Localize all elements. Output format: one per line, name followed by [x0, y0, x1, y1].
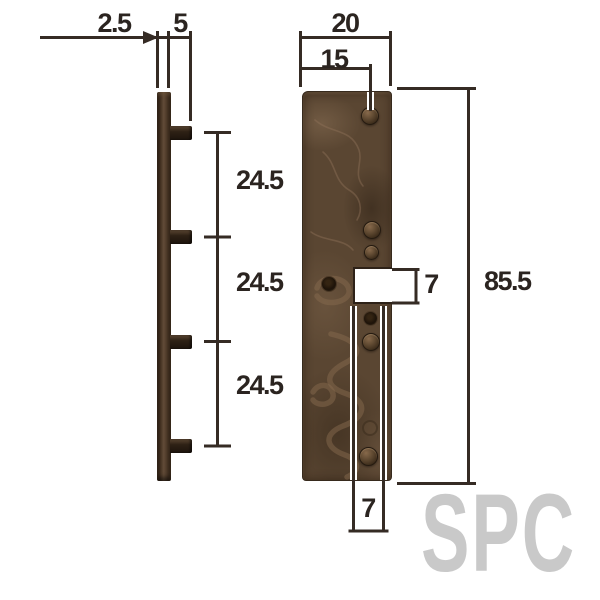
label-peg-length: 5 — [167, 10, 193, 37]
label-pin-offset: 15 — [311, 46, 357, 73]
label-notch-height: 7 — [421, 271, 441, 298]
label-spacing-3: 24.5 — [236, 372, 283, 399]
label-height: 85.5 — [484, 268, 531, 295]
label-width: 20 — [322, 10, 368, 37]
label-notch-width: 7 — [353, 495, 383, 522]
label-spacing-2: 24.5 — [236, 269, 283, 296]
label-spacing-1: 24.5 — [236, 167, 283, 194]
dimension-diagram: SPC — [0, 0, 600, 600]
label-thickness: 2.5 — [88, 10, 140, 37]
dimension-lines — [0, 0, 600, 600]
